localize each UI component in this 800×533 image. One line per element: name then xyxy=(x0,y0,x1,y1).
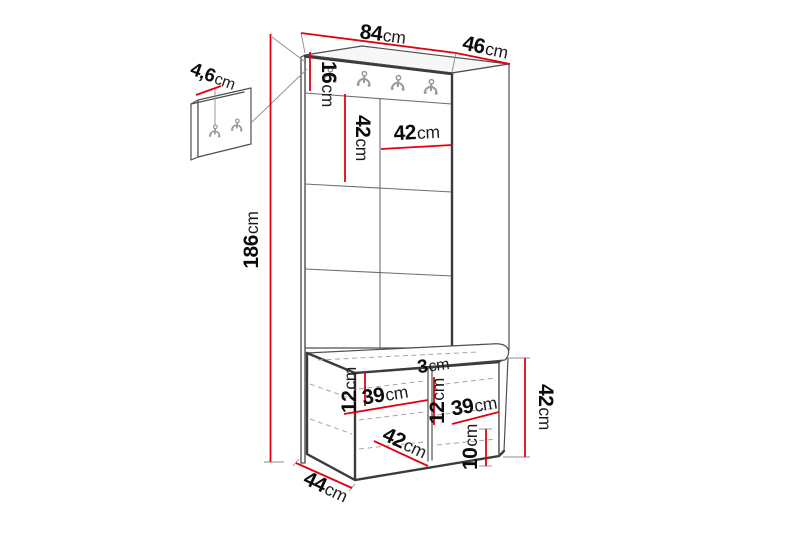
hallway-unit-dimension-diagram: 84cm 46cm 4,6cm 186cm 16cm 42cm 42cm 12c… xyxy=(0,0,800,533)
label-bench-height: 42cm xyxy=(534,384,557,430)
wall-panel-front-face xyxy=(198,88,251,157)
label-bottom-height: 10cm xyxy=(459,424,482,470)
unit-right-side-face xyxy=(452,64,509,350)
label-total-height: 186cm xyxy=(240,211,263,268)
bench-right-side-face xyxy=(499,358,508,456)
label-tile-height: 42cm xyxy=(351,115,374,161)
wall-panel-side-face xyxy=(191,100,198,160)
label-bench-inset-left: 12cm xyxy=(338,367,361,413)
detail-leader-line xyxy=(252,69,307,122)
label-tile-width: 42cm xyxy=(393,120,440,145)
label-rail-height: 16cm xyxy=(317,61,340,107)
label-total-width: 84cm xyxy=(359,20,408,48)
label-bench-inset-mid: 12cm xyxy=(426,378,449,424)
diagram-canvas: 84cm 46cm 4,6cm 186cm 16cm 42cm 42cm 12c… xyxy=(0,0,800,533)
